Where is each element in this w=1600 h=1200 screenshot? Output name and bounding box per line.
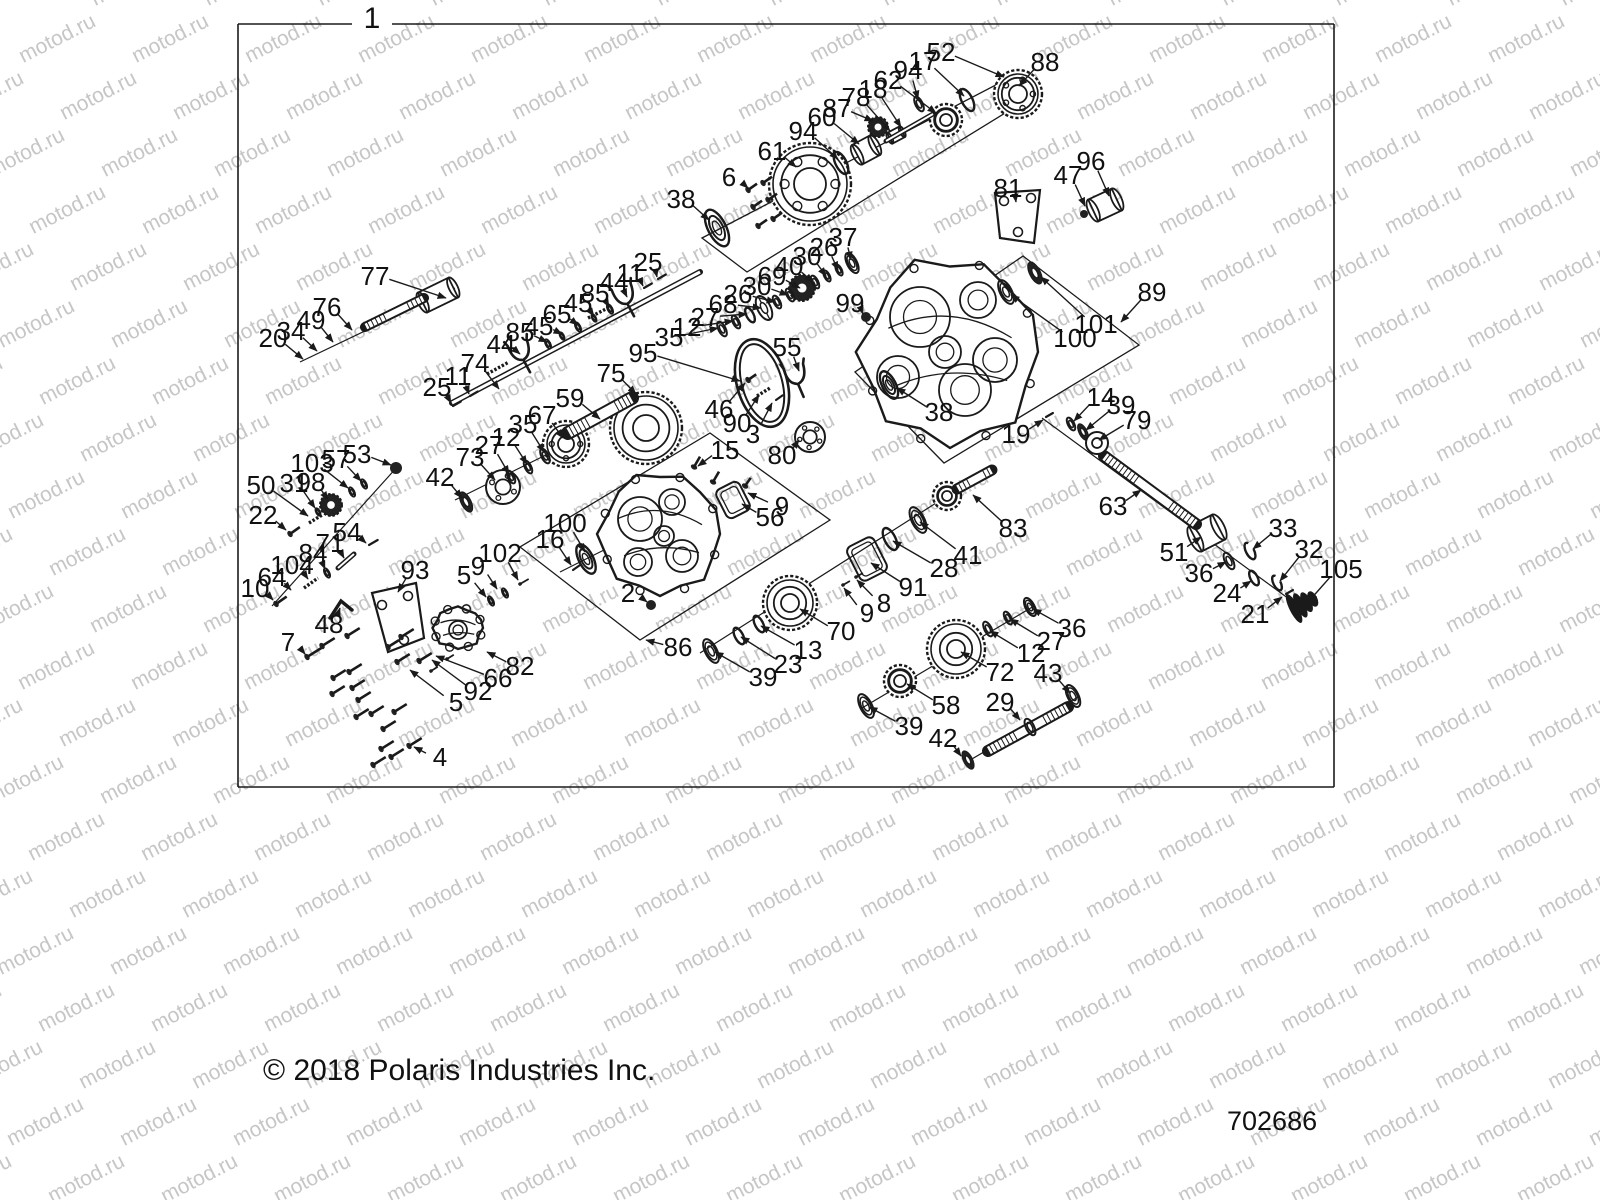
bolt [754,217,769,230]
callout-leader [285,344,303,359]
callout-15: 15 [711,437,740,463]
callout-leader [1029,420,1043,429]
callout-2: 2 [621,580,635,606]
callout-6: 6 [722,164,736,190]
callout-leader [475,583,486,597]
callout-5: 5 [457,562,471,588]
bolt [393,651,411,666]
bolt [352,706,370,721]
gear [763,576,817,630]
washer [981,620,995,638]
callout-88: 88 [1031,49,1060,75]
callout-75: 75 [597,360,626,386]
callout-42: 42 [929,725,958,751]
callout-leader [955,56,1004,77]
callout-73: 73 [456,444,485,470]
washer [1221,551,1236,571]
callout-9: 9 [860,600,874,626]
callout-29: 29 [986,689,1015,715]
callout-41: 41 [954,542,983,568]
callout-91: 91 [899,574,928,600]
callout-leader [371,457,391,465]
callout-leader [934,68,964,96]
washer [501,588,510,599]
gear [994,70,1042,118]
callout-33: 33 [1269,515,1298,541]
bolt [415,650,433,665]
o-ring [731,626,746,646]
callout-leader [487,652,506,662]
callout-leader [642,598,647,602]
callout-37: 37 [829,224,858,250]
callout-leader [432,660,466,685]
gear-dark [320,494,342,516]
callout-10: 10 [241,575,270,601]
copyright-text: © 2018 Polaris Industries Inc. [263,1056,655,1086]
callout-63: 63 [1099,493,1128,519]
pin [644,284,652,289]
gearcase-housing [597,474,720,596]
pin [573,565,580,570]
assembly-callout-1: 1 [364,4,381,34]
pin [369,540,378,545]
bolt [379,718,397,733]
bolt [343,625,361,640]
callout-leader [1126,490,1141,501]
callout-21: 21 [1241,601,1270,627]
callout-leader [300,648,305,654]
bolt [387,746,405,761]
bearing [1021,596,1038,618]
callout-leader [973,495,1001,521]
detent-ball [390,462,402,474]
bearing [843,251,862,275]
bolt [690,455,703,471]
plug [1080,210,1088,218]
o-ring [1247,569,1261,587]
gasket [845,535,889,582]
callout-19: 19 [1002,421,1031,447]
callout-leader [657,356,740,381]
callout-100: 100 [1053,325,1096,351]
callout-leader [741,637,775,659]
seal [700,206,734,250]
callout-48: 48 [315,611,344,637]
bolt [329,667,347,682]
callout-leader [834,124,859,145]
callout-79: 79 [1123,407,1152,433]
bolt [345,661,363,676]
callout-leader [410,670,444,696]
bolt [744,181,759,194]
callout-38: 38 [667,186,696,212]
callout-leader [748,493,768,502]
callout-9: 9 [471,553,485,579]
parts-diagram-page: motod.rumotod.rumotod.rumotod.rumotod.ru… [0,0,1600,1200]
splined-shaft [363,294,426,331]
callout-leader [742,183,748,189]
washer [487,596,496,607]
callout-leader [1010,619,1038,636]
stud [854,571,864,579]
gearcase-housing [431,605,485,651]
callout-23: 23 [774,651,803,677]
callout-24: 24 [1213,580,1242,606]
callout-39: 39 [895,713,924,739]
callout-50: 50 [247,472,276,498]
cv-boot [1283,583,1324,625]
callout-77: 77 [361,263,390,289]
callout-leader [488,575,497,590]
callout-72: 72 [986,659,1015,685]
washer [1065,416,1077,431]
callout-5: 5 [449,689,463,715]
pin [1046,413,1053,417]
callout-leader [1268,597,1282,608]
callout-25: 25 [423,374,452,400]
callout-47: 47 [1054,162,1083,188]
bolt [709,470,722,486]
bolt [367,703,385,718]
callout-93: 93 [401,557,430,583]
stud [518,577,530,586]
callout-98: 98 [297,469,326,495]
callout-16: 16 [536,526,565,552]
washer [348,487,357,498]
callout-20: 20 [259,325,288,351]
seal-dark [959,749,976,771]
callout-leader [920,522,956,549]
pin [776,395,783,400]
seal-dark [457,490,476,514]
bolt [377,738,395,753]
callout-56: 56 [756,504,785,530]
callout-58: 58 [932,692,961,718]
callout-42: 42 [426,464,455,490]
callout-55: 55 [773,334,802,360]
callout-52: 52 [927,39,956,65]
plug [646,600,656,610]
callout-61: 61 [758,138,787,164]
stud [841,579,851,587]
cylinder-part [848,134,884,167]
flange [1086,432,1108,454]
callout-99: 99 [836,290,865,316]
bolt [328,683,346,698]
splined-shaft [955,466,995,494]
callout-8: 8 [877,590,891,616]
callout-92: 92 [464,678,493,704]
callout-leader [857,580,873,596]
callout-86: 86 [664,634,693,660]
cylinder-part [1084,187,1126,224]
snap-ring [1270,574,1284,592]
callout-4: 4 [433,744,447,770]
bolt [369,754,387,769]
callout-43: 43 [1034,660,1063,686]
spring [309,515,322,523]
callout-leader [1240,581,1251,588]
callout-44: 44 [487,331,516,357]
callout-leader [436,656,484,674]
bolt [286,524,302,538]
gear [884,665,916,697]
callout-leader [851,112,873,121]
stud [429,665,439,673]
callout-38: 38 [925,399,954,425]
callout-leader [1213,562,1226,569]
callout-39: 39 [749,664,778,690]
snap-ring [1242,541,1257,561]
callout-leader [646,640,663,645]
seal-dark [1025,260,1046,286]
bolt [348,677,366,692]
callout-59: 59 [556,385,585,411]
pin [1286,590,1293,594]
spring [757,388,770,396]
callout-70: 70 [827,618,856,644]
callout-leader [990,631,1018,648]
callout-22: 22 [249,502,278,528]
diagram-part-number: 702686 [1227,1108,1317,1135]
callout-leader [1033,609,1059,623]
o-ring [751,614,766,634]
bolt [741,476,754,490]
callout-leader [1086,411,1109,430]
gear [930,104,962,136]
callout-36: 36 [1185,560,1214,586]
callout-105: 105 [1319,556,1362,582]
callout-95: 95 [629,340,658,366]
callout-7: 7 [281,629,295,655]
callout-leader [893,541,931,563]
shaft-rod [886,114,933,141]
callout-83: 83 [999,515,1028,541]
gear [927,620,985,678]
callout-53: 53 [343,441,372,467]
callout-leader [844,588,857,605]
callout-3: 3 [746,421,760,447]
bolt [354,689,372,704]
bolt [390,701,408,716]
bolt [744,371,758,384]
callout-81: 81 [994,175,1023,201]
o-ring [880,526,901,552]
callout-leader [414,747,426,753]
flange [795,422,825,452]
callout-leader [715,652,750,672]
washer [323,568,332,579]
callout-80: 80 [768,442,797,468]
callout-89: 89 [1138,279,1167,305]
